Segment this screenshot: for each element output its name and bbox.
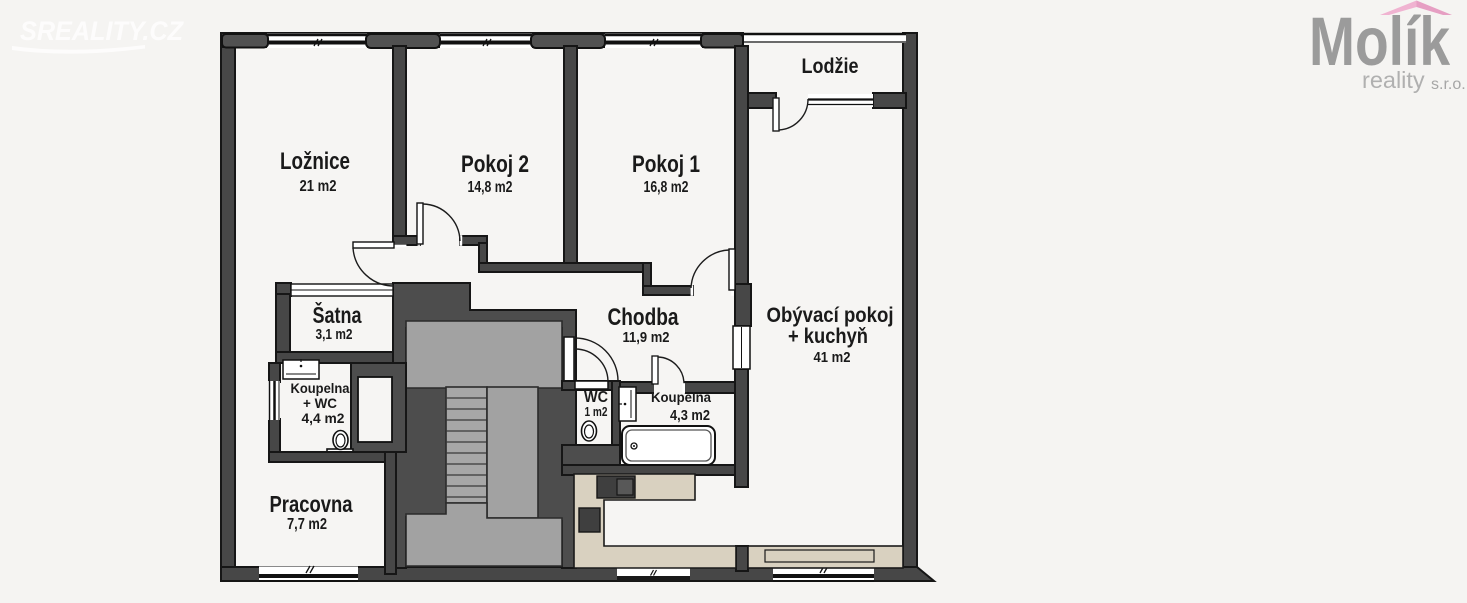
svg-text:+ kuchyň: + kuchyň: [788, 325, 868, 348]
svg-text:4,4 m2: 4,4 m2: [302, 410, 345, 426]
svg-text:3,1 m2: 3,1 m2: [316, 326, 353, 343]
svg-text:Ložnice: Ložnice: [280, 148, 350, 175]
svg-text:Lodžie: Lodžie: [802, 55, 859, 78]
svg-text:s.r.o.: s.r.o.: [1431, 76, 1466, 93]
svg-text:4,3 m2: 4,3 m2: [670, 408, 710, 424]
svg-text:21 m2: 21 m2: [300, 178, 337, 195]
svg-text:Pracovna: Pracovna: [270, 491, 353, 517]
svg-text:reality: reality: [1362, 67, 1425, 93]
svg-text:16,8 m2: 16,8 m2: [644, 179, 689, 196]
svg-text:+ WC: + WC: [303, 395, 337, 411]
svg-text:Šatna: Šatna: [313, 301, 362, 328]
svg-text:Chodba: Chodba: [608, 304, 680, 331]
svg-text:Koupelna: Koupelna: [291, 380, 350, 396]
svg-text:SREALITY.CZ: SREALITY.CZ: [20, 16, 184, 46]
svg-text:11,9 m2: 11,9 m2: [623, 330, 670, 346]
svg-text:1 m2: 1 m2: [585, 404, 608, 419]
svg-text:Obývací pokoj: Obývací pokoj: [767, 304, 894, 327]
svg-text:41 m2: 41 m2: [814, 349, 851, 366]
svg-text:Pokoj 2: Pokoj 2: [461, 151, 529, 178]
svg-text:Koupelna: Koupelna: [651, 389, 711, 405]
svg-text:14,8 m2: 14,8 m2: [468, 179, 513, 196]
svg-text:7,7 m2: 7,7 m2: [287, 516, 327, 533]
svg-text:Pokoj 1: Pokoj 1: [632, 151, 700, 178]
